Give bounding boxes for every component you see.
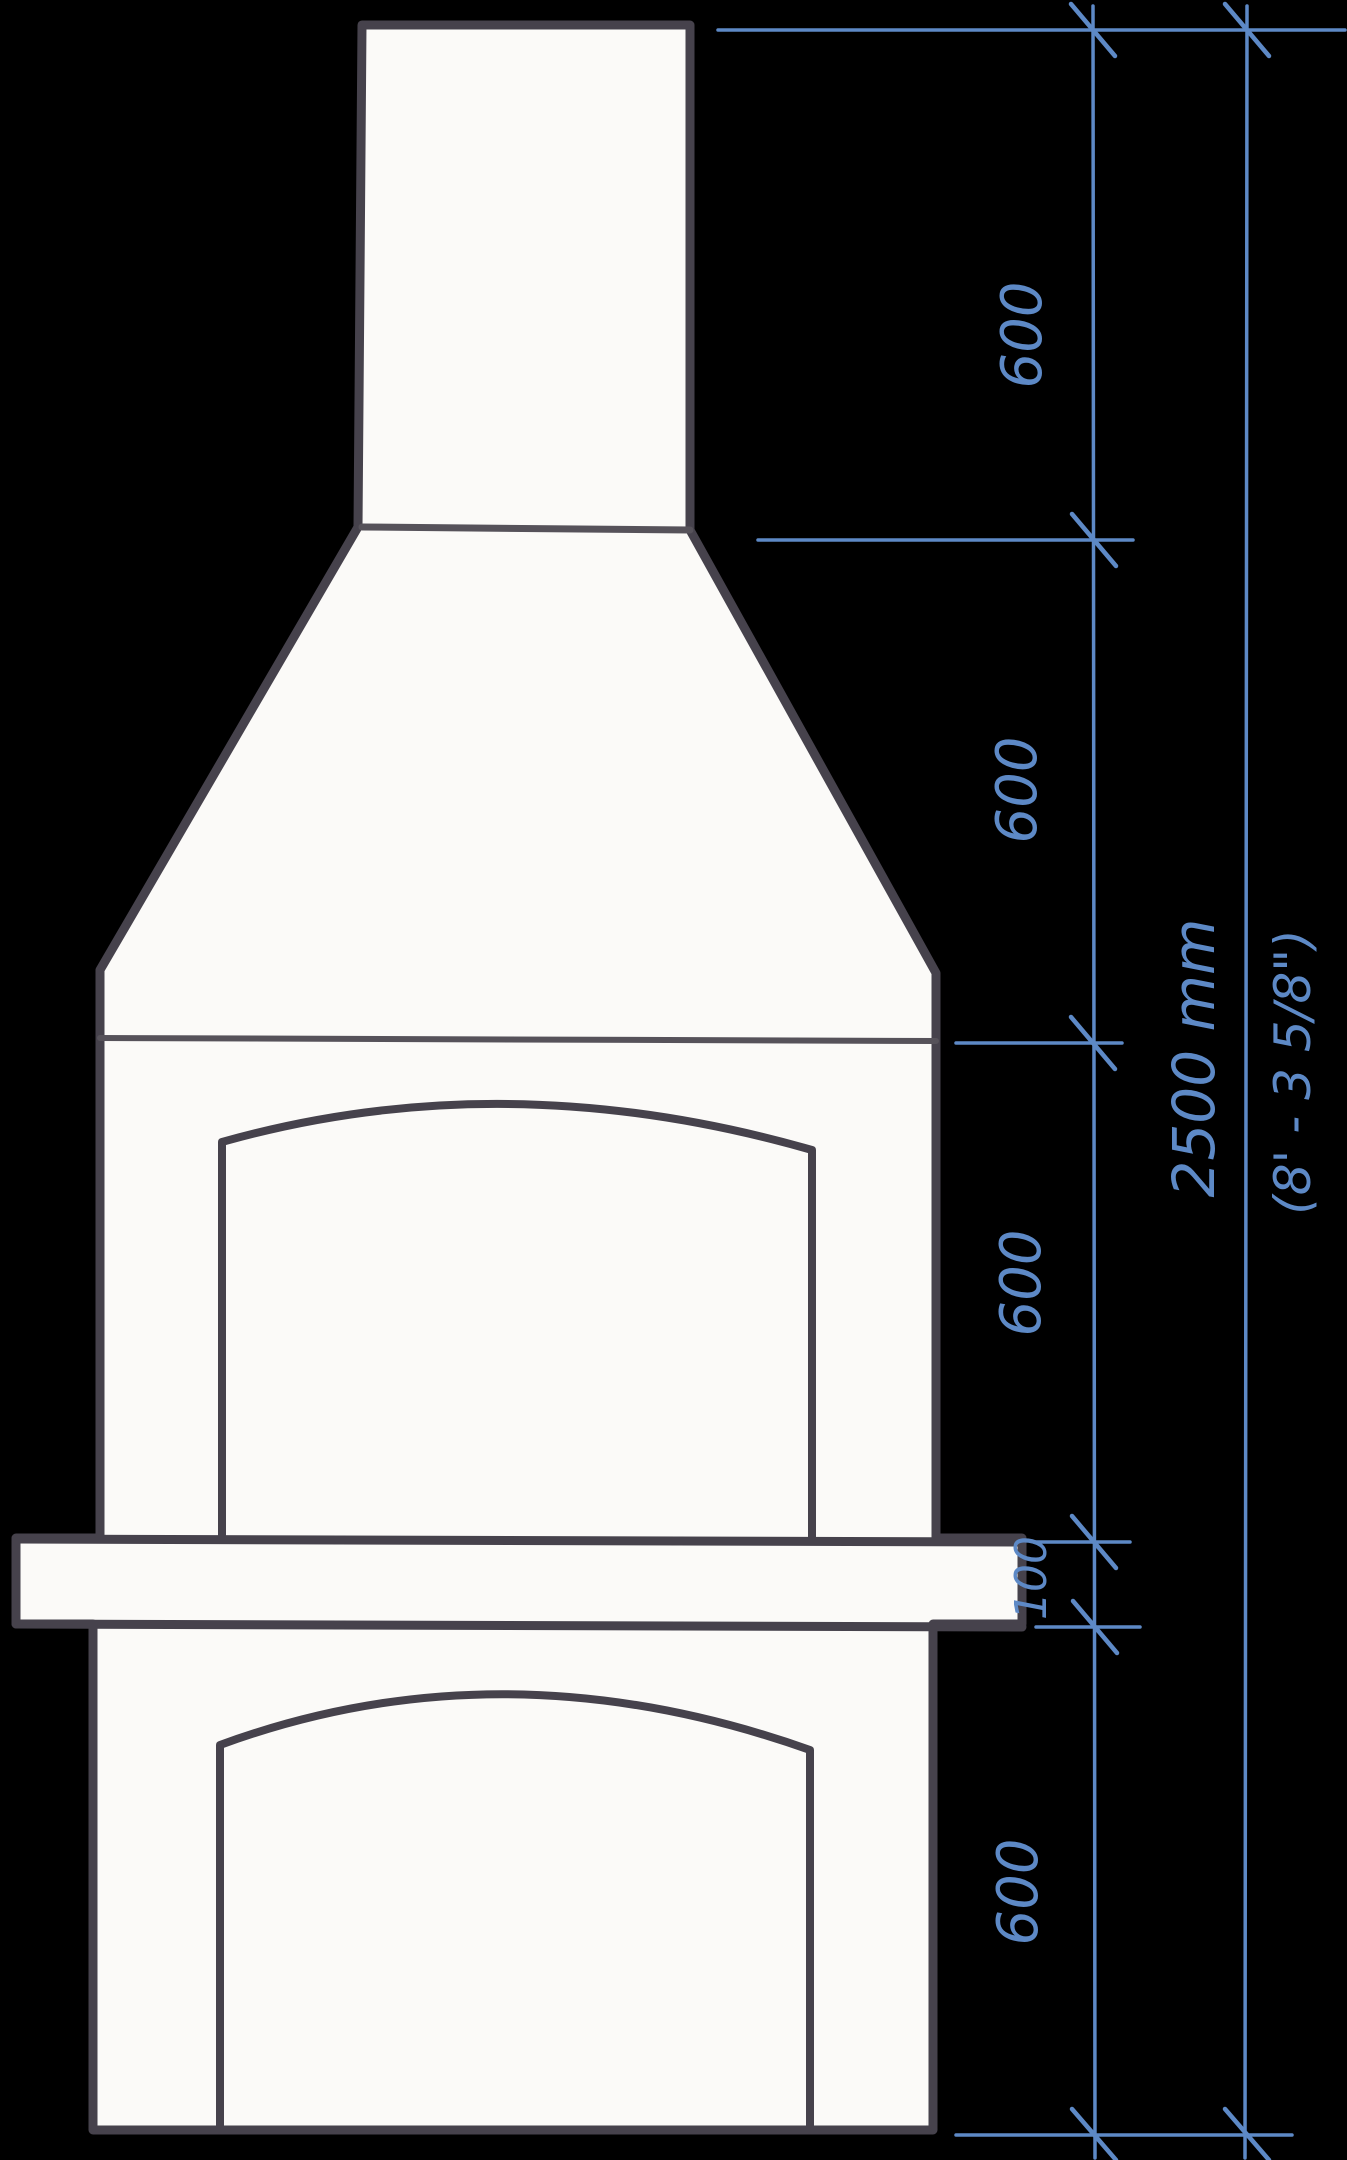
total-height-label-mm: 2500 mm xyxy=(1160,918,1228,1197)
overall-dimension-line xyxy=(1245,6,1247,2158)
total-height-label-imperial: (8' - 3 5/8") xyxy=(1264,929,1322,1215)
sketch-canvas: 600 600 600 100 600 2500 mm (8' - 3 5/8"… xyxy=(0,0,1347,2160)
fireplace-silhouette xyxy=(16,25,1022,2130)
shelf-bottom-line xyxy=(16,1624,1022,1627)
shelf-top-line xyxy=(16,1539,1022,1542)
segment-label-shelf: 100 xyxy=(1006,1536,1057,1620)
fireplace-elevation-drawing: 600 600 600 100 600 2500 mm (8' - 3 5/8"… xyxy=(0,0,1347,2160)
segment-dimension-line xyxy=(1093,6,1095,2158)
segment-label-taper: 600 xyxy=(985,737,1050,844)
smoke-chamber-base-line xyxy=(100,1038,936,1041)
segment-label-chimney: 600 xyxy=(990,282,1055,389)
segment-label-firebox: 600 xyxy=(989,1230,1054,1337)
fireplace-figure xyxy=(16,25,1022,2130)
chimney-base-line xyxy=(362,527,690,530)
segment-label-base: 600 xyxy=(986,1839,1051,1946)
